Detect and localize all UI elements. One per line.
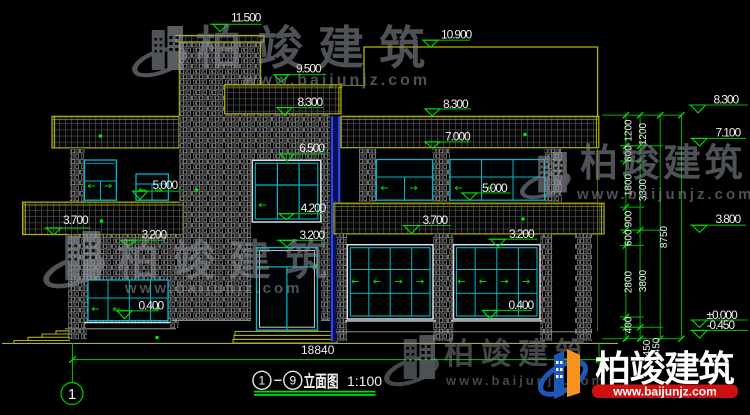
- svg-text:10.900: 10.900: [441, 28, 473, 42]
- svg-text:www.baijunjz.com: www.baijunjz.com: [612, 385, 717, 399]
- svg-text:2800: 2800: [624, 270, 635, 293]
- svg-text:1:100: 1:100: [347, 373, 382, 389]
- svg-text:5.000: 5.000: [153, 178, 179, 192]
- svg-text:柏竣建筑: 柏竣建筑: [595, 348, 735, 389]
- svg-text:6.500: 6.500: [299, 141, 325, 155]
- svg-text:400: 400: [624, 316, 635, 333]
- svg-text:4.200: 4.200: [301, 201, 327, 215]
- svg-text:3.700: 3.700: [423, 213, 449, 227]
- svg-text:1200: 1200: [638, 122, 649, 145]
- svg-text:8.300: 8.300: [714, 93, 740, 107]
- svg-text:9: 9: [289, 374, 296, 388]
- svg-text:-0.450: -0.450: [707, 318, 736, 332]
- svg-text:900: 900: [624, 210, 635, 227]
- svg-text:www.baijunjz.com: www.baijunjz.com: [576, 186, 750, 203]
- svg-text:柏竣建筑: 柏竣建筑: [580, 143, 746, 185]
- svg-text:柏竣建筑: 柏竣建筑: [196, 22, 440, 74]
- svg-text:3.700: 3.700: [63, 213, 89, 227]
- svg-text:www.baijunjz.com: www.baijunjz.com: [124, 280, 302, 297]
- svg-text:18840: 18840: [301, 343, 335, 357]
- svg-text:立面图: 立面图: [304, 371, 339, 391]
- svg-text:www.baijunjz.com: www.baijunjz.com: [243, 72, 430, 89]
- svg-text:柏竣建筑: 柏竣建筑: [117, 237, 341, 284]
- svg-text:600: 600: [624, 229, 635, 246]
- svg-text:3.800: 3.800: [716, 212, 742, 226]
- svg-text:8750: 8750: [659, 225, 670, 248]
- svg-text:7.100: 7.100: [716, 125, 742, 139]
- svg-text:1200: 1200: [624, 119, 635, 142]
- svg-text:1: 1: [68, 386, 76, 403]
- svg-text:8.300: 8.300: [298, 95, 324, 109]
- svg-text:1: 1: [259, 374, 266, 388]
- svg-text:3800: 3800: [638, 269, 649, 292]
